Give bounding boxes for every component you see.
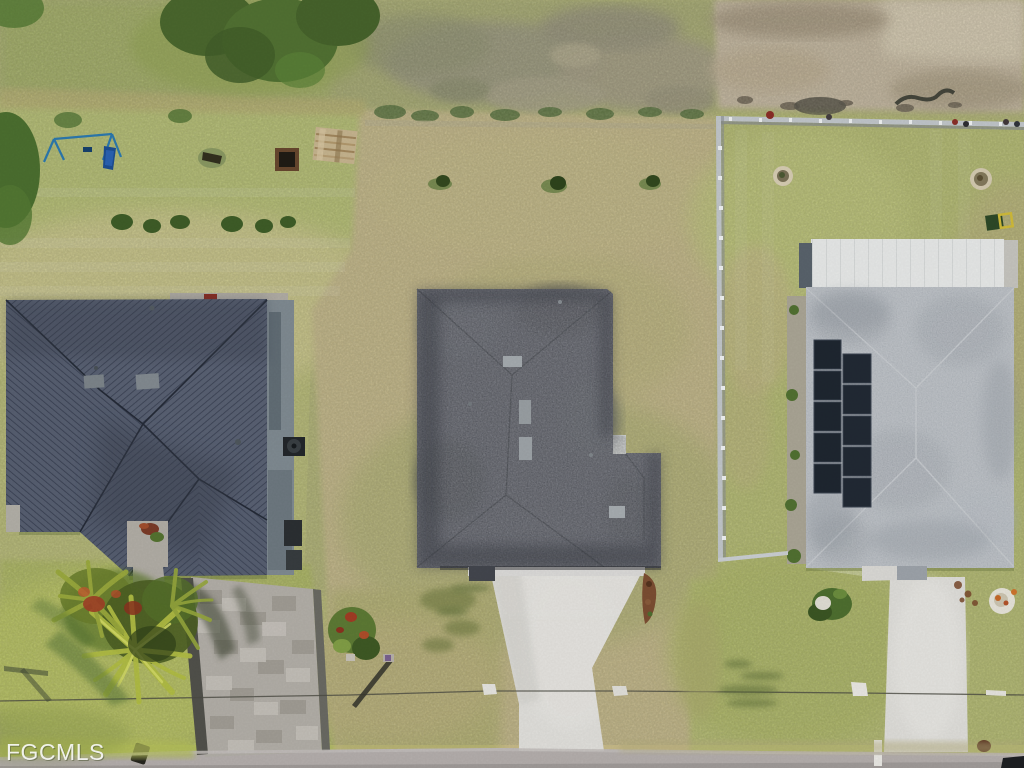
svg-text:FGCMLS: FGCMLS (6, 739, 105, 765)
